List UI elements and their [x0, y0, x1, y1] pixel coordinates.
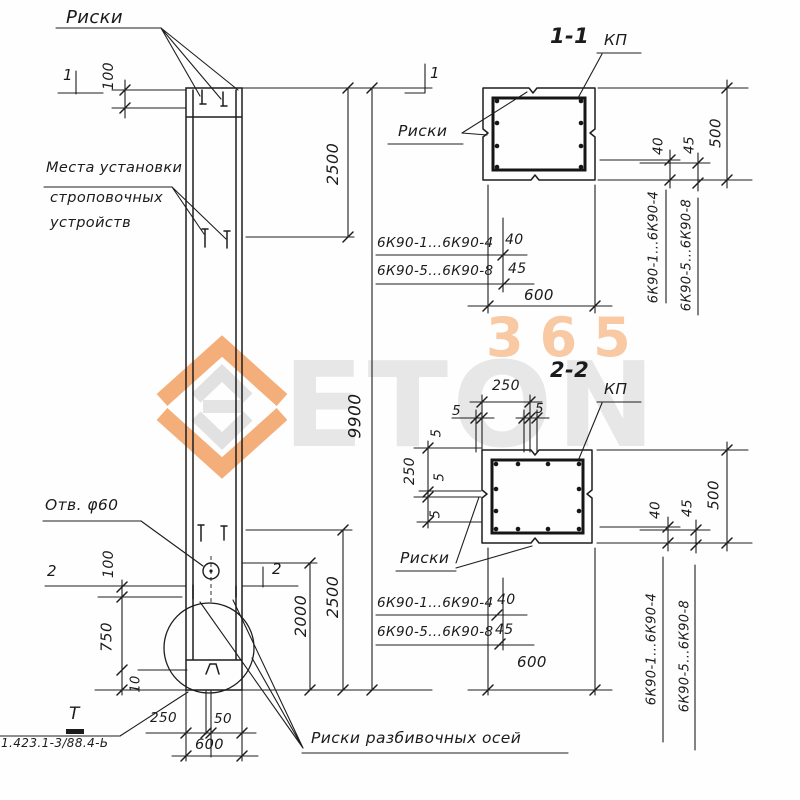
- dim-750: 750: [100, 622, 115, 652]
- series-row1-value-s1: 40: [505, 233, 524, 247]
- detail-mark-t: Т: [69, 706, 80, 723]
- kp-label-s2: КП: [604, 382, 627, 398]
- dim-9900-overall: 9900: [348, 394, 365, 439]
- series-side-5-8-s2: 6К90-5...6К90-8: [679, 600, 692, 712]
- dim-40-s1: 40: [652, 137, 666, 155]
- dim-600-bottom: 600: [195, 738, 224, 753]
- cut-mark-2-right: 2: [272, 562, 282, 577]
- dim-2500-bottom: 2500: [325, 576, 341, 618]
- riski-label-s2: Риски: [400, 551, 449, 567]
- dim-500-s2: 500: [707, 480, 722, 510]
- series-row1-value-s2: 40: [497, 593, 516, 607]
- dim-50-bottom: 50: [214, 713, 232, 727]
- dim-250-top-s2: 250: [492, 379, 520, 393]
- dim-100-bottom: 100: [102, 550, 116, 578]
- dim-100-top: 100: [102, 62, 116, 90]
- blueprint-canvas: ETON 365: [0, 0, 800, 800]
- dim-600-s1: 600: [524, 288, 554, 303]
- dim-45-s2: 45: [681, 499, 695, 517]
- dim-2500-top: 2500: [325, 143, 341, 185]
- series-side-1-4-s2: 6К90-1...6К90-4: [646, 593, 659, 705]
- series-row2-value-s2: 45: [495, 623, 514, 637]
- series-reference: 1.423.1-3/88.4-Ь: [1, 737, 109, 749]
- kp-label-s1: КП: [604, 33, 627, 49]
- cut-mark-2-left: 2: [47, 564, 57, 579]
- dim-250-bottom: 250: [150, 712, 177, 726]
- dim-500-s1: 500: [709, 118, 724, 148]
- dim-2000: 2000: [293, 595, 309, 637]
- dim-5-left-a-s2: 5: [431, 429, 444, 438]
- dim-10: 10: [130, 675, 143, 692]
- dim-40-s2: 40: [649, 501, 663, 519]
- series-row2-label-s1: 6К90-5...6К90-8: [377, 265, 494, 279]
- dim-5-left-c-s2: 5: [430, 510, 443, 519]
- dim-5-topleft-s2: 5: [452, 405, 461, 419]
- riski-label-s1: Риски: [398, 124, 447, 140]
- hole-label: Отв. φ60: [45, 498, 118, 514]
- series-row1-label-s1: 6К90-1...6К90-4: [377, 237, 494, 251]
- dim-5-left-b-s2: 5: [434, 473, 447, 482]
- dim-600-s2: 600: [517, 655, 547, 670]
- axes-note: Риски разбивочных осей: [311, 731, 521, 747]
- series-side-1-4-s1: 6К90-1...6К90-4: [648, 191, 661, 303]
- dim-45-s1: 45: [683, 136, 697, 154]
- cut-mark-1-right: 1: [430, 66, 440, 81]
- cut-mark-1-left: 1: [63, 68, 73, 83]
- section-1-title: 1-1: [550, 26, 589, 47]
- series-row2-value-s1: 45: [508, 262, 527, 276]
- series-row1-label-s2: 6К90-1...6К90-4: [377, 597, 494, 611]
- dim-250-left-s2: 250: [403, 457, 417, 485]
- series-side-5-8-s1: 6К90-5...6К90-8: [681, 199, 694, 311]
- lifting-note-line2: строповочных: [50, 191, 163, 206]
- section-2-title: 2-2: [550, 360, 589, 381]
- riski-top-label: Риски: [66, 9, 123, 27]
- lifting-note-line3: устройств: [50, 216, 131, 231]
- dim-5-topright-s2: 5: [535, 403, 544, 417]
- lifting-note-line1: Места установки: [46, 161, 182, 176]
- series-row2-label-s2: 6К90-5...6К90-8: [377, 626, 494, 640]
